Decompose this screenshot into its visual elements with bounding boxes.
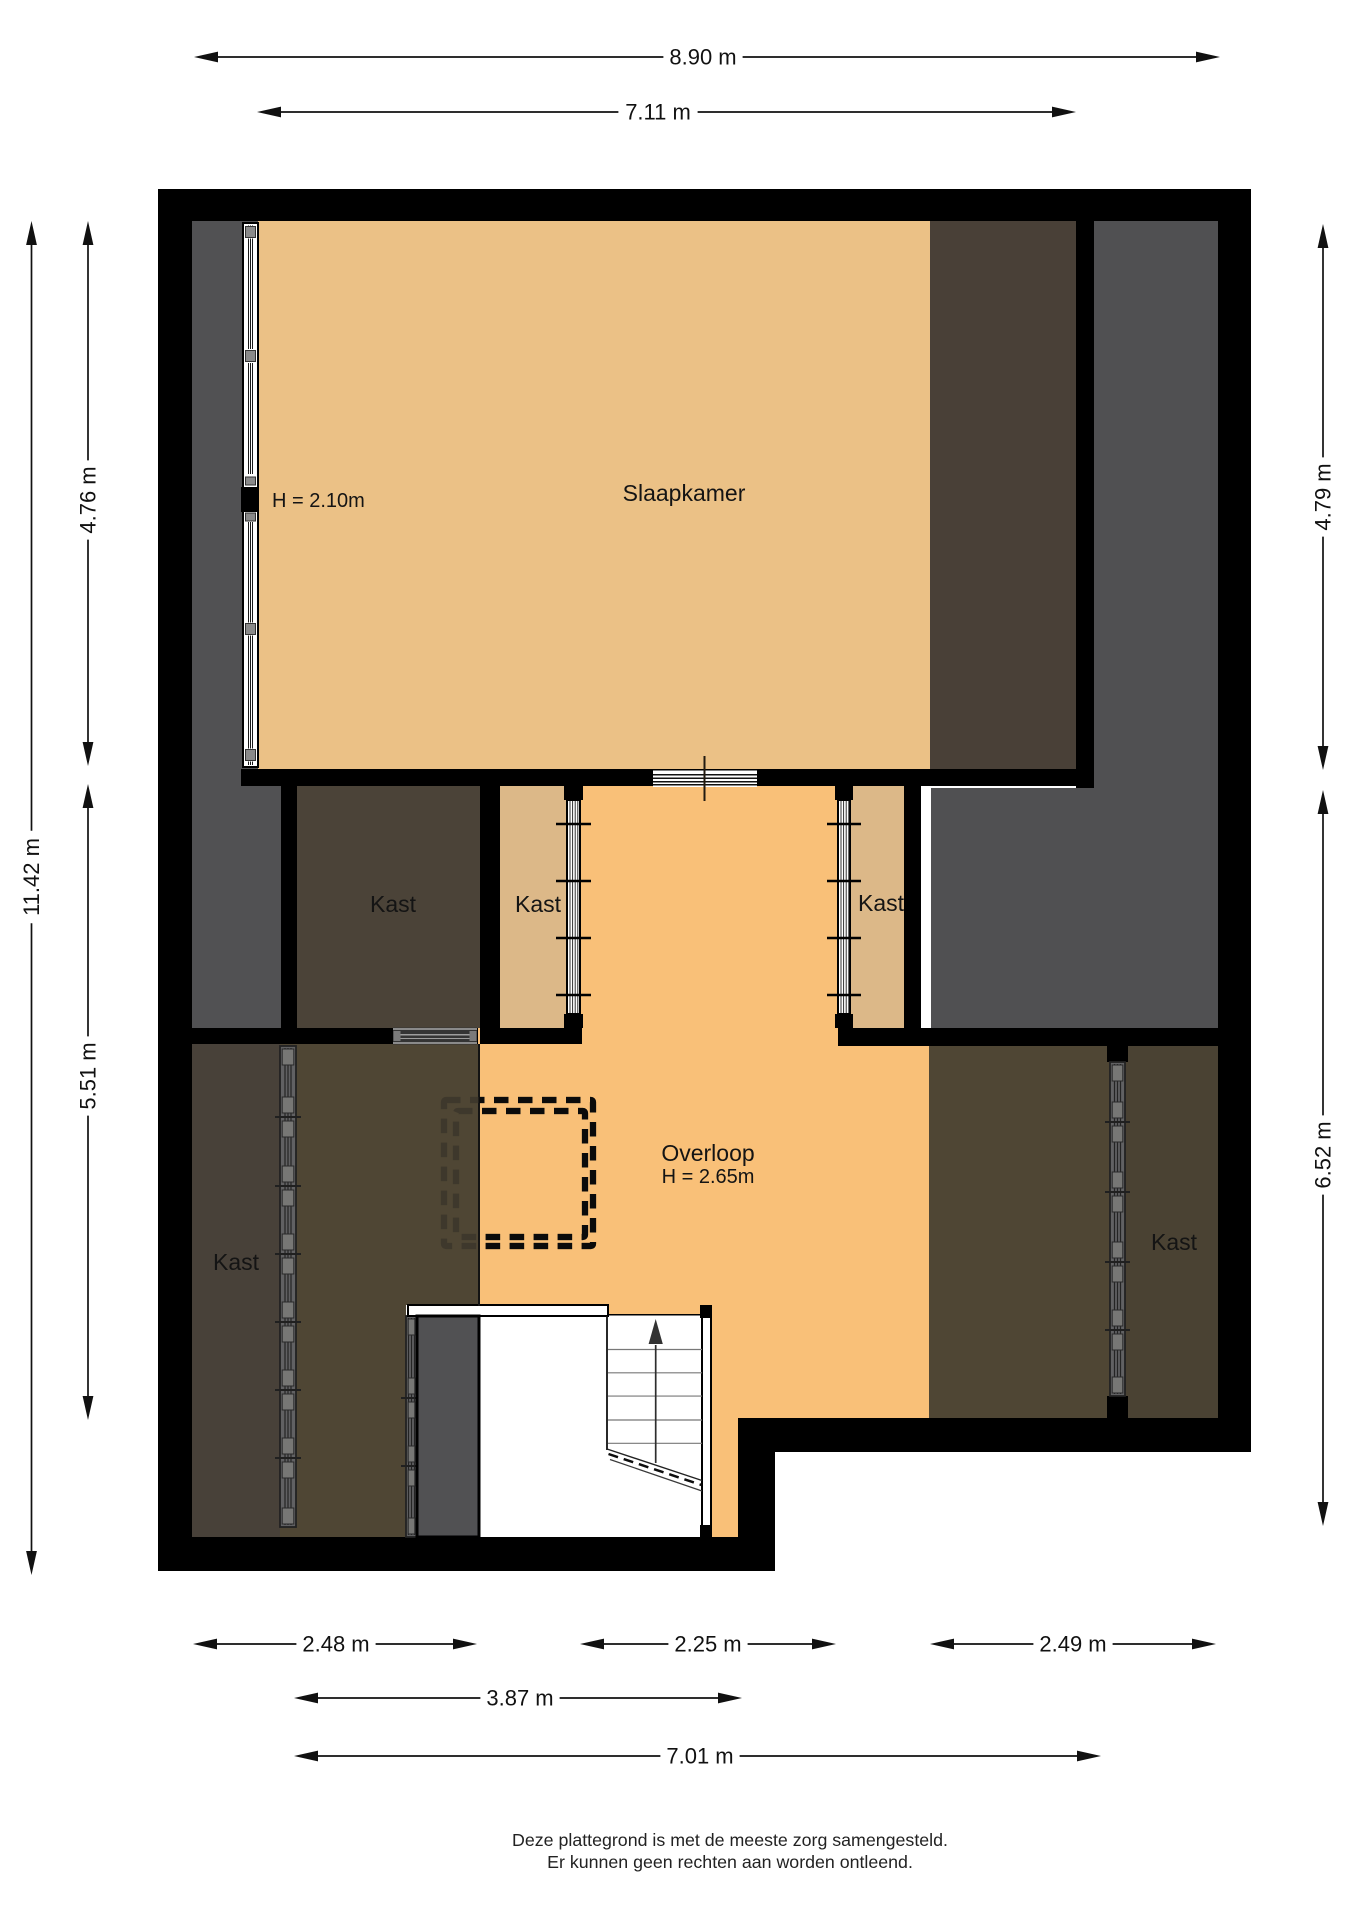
svg-text:Overloop: Overloop (661, 1140, 754, 1166)
svg-text:Kast: Kast (370, 891, 417, 917)
svg-text:H = 2.65m: H = 2.65m (662, 1166, 755, 1188)
svg-text:Kast: Kast (213, 1249, 260, 1275)
svg-text:2.49 m: 2.49 m (1039, 1631, 1106, 1656)
svg-text:3.87 m: 3.87 m (486, 1685, 553, 1710)
svg-text:Kast: Kast (858, 890, 905, 916)
svg-text:6.52 m: 6.52 m (1310, 1121, 1335, 1188)
svg-text:5.51 m: 5.51 m (75, 1042, 100, 1109)
svg-text:2.25 m: 2.25 m (674, 1631, 741, 1656)
svg-text:Er kunnen geen rechten aan wor: Er kunnen geen rechten aan worden ontlee… (547, 1852, 913, 1872)
svg-text:Kast: Kast (515, 891, 562, 917)
svg-text:4.79 m: 4.79 m (1310, 463, 1335, 530)
svg-text:7.01 m: 7.01 m (666, 1743, 733, 1768)
svg-text:8.90 m: 8.90 m (669, 44, 736, 69)
svg-text:7.11 m: 7.11 m (625, 99, 691, 124)
svg-text:Kast: Kast (1151, 1229, 1198, 1255)
svg-text:Slaapkamer: Slaapkamer (623, 480, 746, 506)
svg-text:H = 2.10m: H = 2.10m (272, 490, 365, 512)
svg-text:4.76 m: 4.76 m (75, 466, 100, 533)
svg-text:2.48 m: 2.48 m (302, 1631, 369, 1656)
svg-text:Deze plattegrond is met de mee: Deze plattegrond is met de meeste zorg s… (512, 1830, 948, 1850)
svg-text:11.42 m: 11.42 m (19, 838, 44, 916)
